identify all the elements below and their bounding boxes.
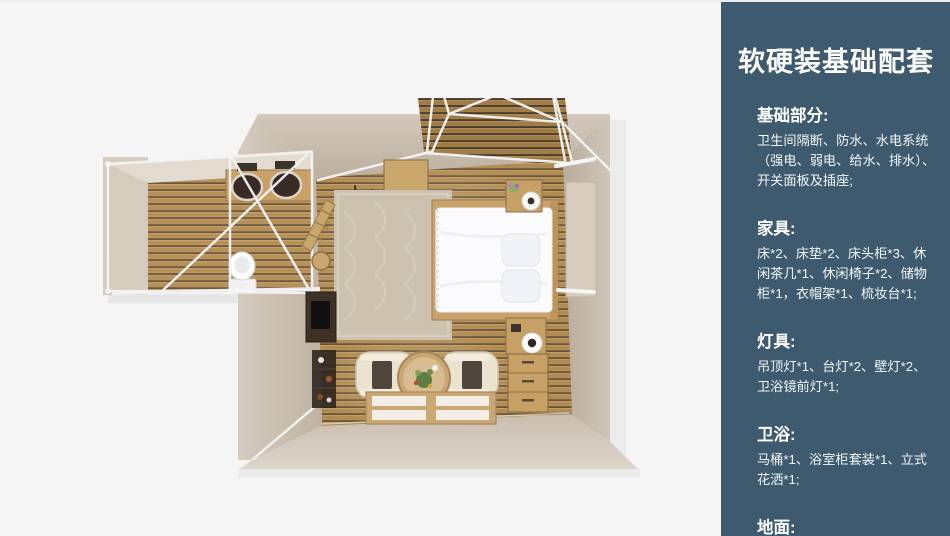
sink-left bbox=[232, 174, 262, 200]
frame-post-corner bbox=[105, 288, 111, 294]
toilet bbox=[229, 252, 256, 292]
double-bed bbox=[432, 200, 558, 320]
section-furniture-body: 床*2、床垫*2、床头柜*3、休 闲茶几*1、休闲椅子*2、储物 柜*1，衣帽架… bbox=[757, 244, 936, 304]
info-sidebar: 软硬装基础配套 基础部分: 卫生间隔断、防水、水电系统 （强电、弱电、给水、排水… bbox=[721, 2, 950, 536]
section-lighting-heading: 灯具: bbox=[757, 328, 936, 352]
section-bathroom-heading: 卫浴: bbox=[757, 421, 936, 445]
floor-platform bbox=[366, 392, 496, 424]
nightstand-bottom bbox=[506, 318, 546, 354]
section-bathroom: 卫浴: 马桶*1、浴室柜套装*1、立式 花洒*1; bbox=[738, 421, 936, 490]
laptop-screen bbox=[311, 301, 330, 329]
section-lighting-body: 吊顶灯*1、台灯*2、壁灯*2、 卫浴镜前灯*1; bbox=[757, 357, 936, 397]
nightstand-top bbox=[506, 180, 542, 212]
media-desk bbox=[306, 292, 336, 342]
storage-basket bbox=[312, 252, 330, 270]
section-floor-heading: 地面: bbox=[757, 514, 936, 536]
section-lighting: 灯具: 吊顶灯*1、台灯*2、壁灯*2、 卫浴镜前灯*1; bbox=[738, 328, 936, 397]
section-furniture-heading: 家具: bbox=[757, 215, 936, 239]
section-basics-heading: 基础部分: bbox=[757, 102, 936, 126]
section-bathroom-body: 马桶*1、浴室柜套装*1、立式 花洒*1; bbox=[757, 450, 936, 490]
slide-canvas: 软硬装基础配套 基础部分: 卫生间隔断、防水、水电系统 （强电、弱电、给水、排水… bbox=[0, 0, 950, 536]
storage-shelf bbox=[312, 350, 336, 408]
bathroom-wing bbox=[103, 150, 320, 295]
pillow bbox=[502, 270, 540, 302]
section-floor: 地面: 强化木地板、卫生间防滑防潮 石塑板; bbox=[738, 514, 936, 536]
sidebar-title: 软硬装基础配套 bbox=[738, 46, 936, 78]
pillow bbox=[502, 234, 540, 266]
section-basics-body: 卫生间隔断、防水、水电系统 （强电、弱电、给水、排水）、 开关面板及插座; bbox=[757, 131, 936, 191]
wall-cabinet bbox=[566, 182, 596, 297]
floorplan-svg bbox=[0, 2, 722, 536]
section-furniture: 家具: 床*2、床垫*2、床头柜*3、休 闲茶几*1、休闲椅子*2、储物 柜*1… bbox=[738, 215, 936, 304]
section-basics: 基础部分: 卫生间隔断、防水、水电系统 （强电、弱电、给水、排水）、 开关面板及… bbox=[738, 102, 936, 191]
wall-lamp-bottom bbox=[558, 290, 594, 292]
floorplan-render bbox=[0, 2, 722, 536]
frame-post-corner bbox=[105, 161, 111, 167]
dresser bbox=[508, 354, 548, 412]
